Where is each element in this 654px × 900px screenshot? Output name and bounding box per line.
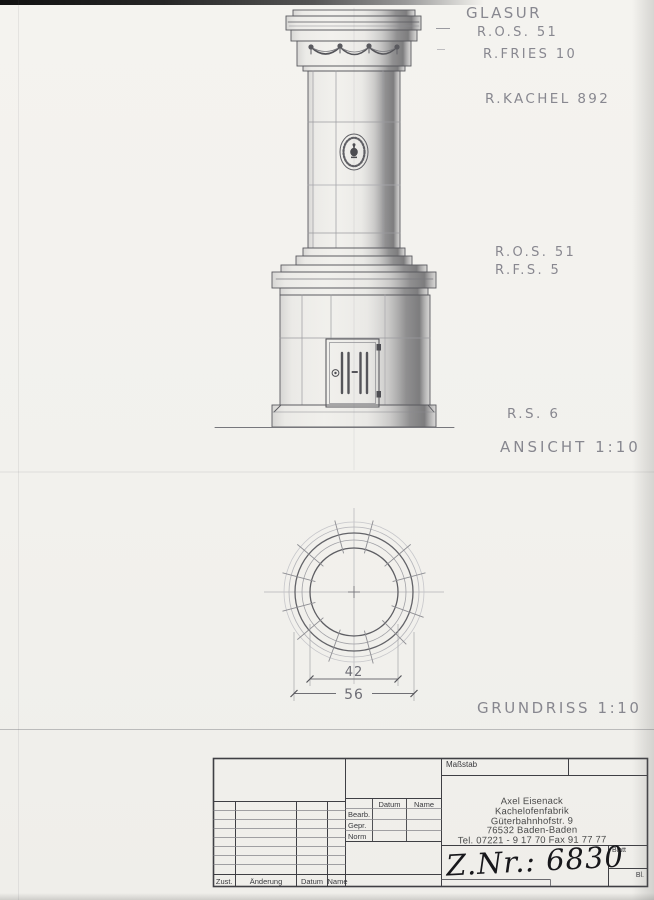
stove-elevation (215, 8, 454, 470)
annotation-grundriss: GRUNDRISS 1:10 (477, 699, 642, 717)
header-datum-label: Datum (373, 800, 407, 809)
rev-datum-label: Datum (297, 877, 328, 886)
plinth (272, 405, 436, 427)
annotation-glasur: GLASUR (466, 4, 542, 22)
leader-dash (437, 49, 445, 50)
company-stamp: Axel Eisenack Kachelofenfabrik Güterbahn… (452, 796, 612, 846)
annotation-r-fries: R.FRIES 10 (483, 47, 577, 62)
shaft-base-molding (296, 248, 412, 265)
door-hinge-bottom (377, 391, 382, 398)
dimension-label-outer: 56 (344, 687, 364, 703)
zust-label: Zust. (213, 877, 236, 886)
annotation-rs6: R.S. 6 (507, 406, 560, 422)
scan-shadow-right (632, 0, 654, 900)
bearb-label: Bearb. (348, 810, 370, 819)
scan-edge-top (0, 0, 654, 5)
gepr-label: Gepr. (348, 821, 366, 830)
annotation-rfs: R.F.S. 5 (495, 263, 561, 278)
massstab-label: Maßstab (446, 760, 477, 769)
annotation-ansicht: ANSICHT 1:10 (500, 438, 641, 456)
stove-plan: 42 56 (264, 508, 444, 703)
scan-shadow-bottom (0, 893, 654, 900)
norm-label: Norm (348, 832, 366, 841)
rev-name-label: Name (328, 877, 346, 886)
stove-crown (286, 10, 421, 41)
aenderung-label: Änderung (236, 877, 297, 886)
header-name-label: Name (407, 800, 442, 809)
annotation-ros-mid: R.O.S. 51 (495, 245, 576, 260)
door-hinge-top (377, 344, 382, 351)
annotation-r-kachel: R.KACHEL 892 (485, 91, 610, 107)
pedestal-cornice (272, 265, 436, 295)
pedestal-body (280, 295, 430, 405)
dimension-label-inner: 42 (345, 665, 364, 680)
fold-lines (0, 472, 654, 730)
paper-fold-left (18, 0, 19, 900)
garland-frieze (297, 41, 411, 71)
scanned-drawing-sheet: 42 56 GLASUR R.O.S. 51 R.FRIES 10 R.KACH… (0, 0, 654, 900)
stove-shaft (308, 71, 400, 248)
annotation-ros-top: R.O.S. 51 (477, 25, 558, 40)
leader-dash (436, 28, 450, 29)
